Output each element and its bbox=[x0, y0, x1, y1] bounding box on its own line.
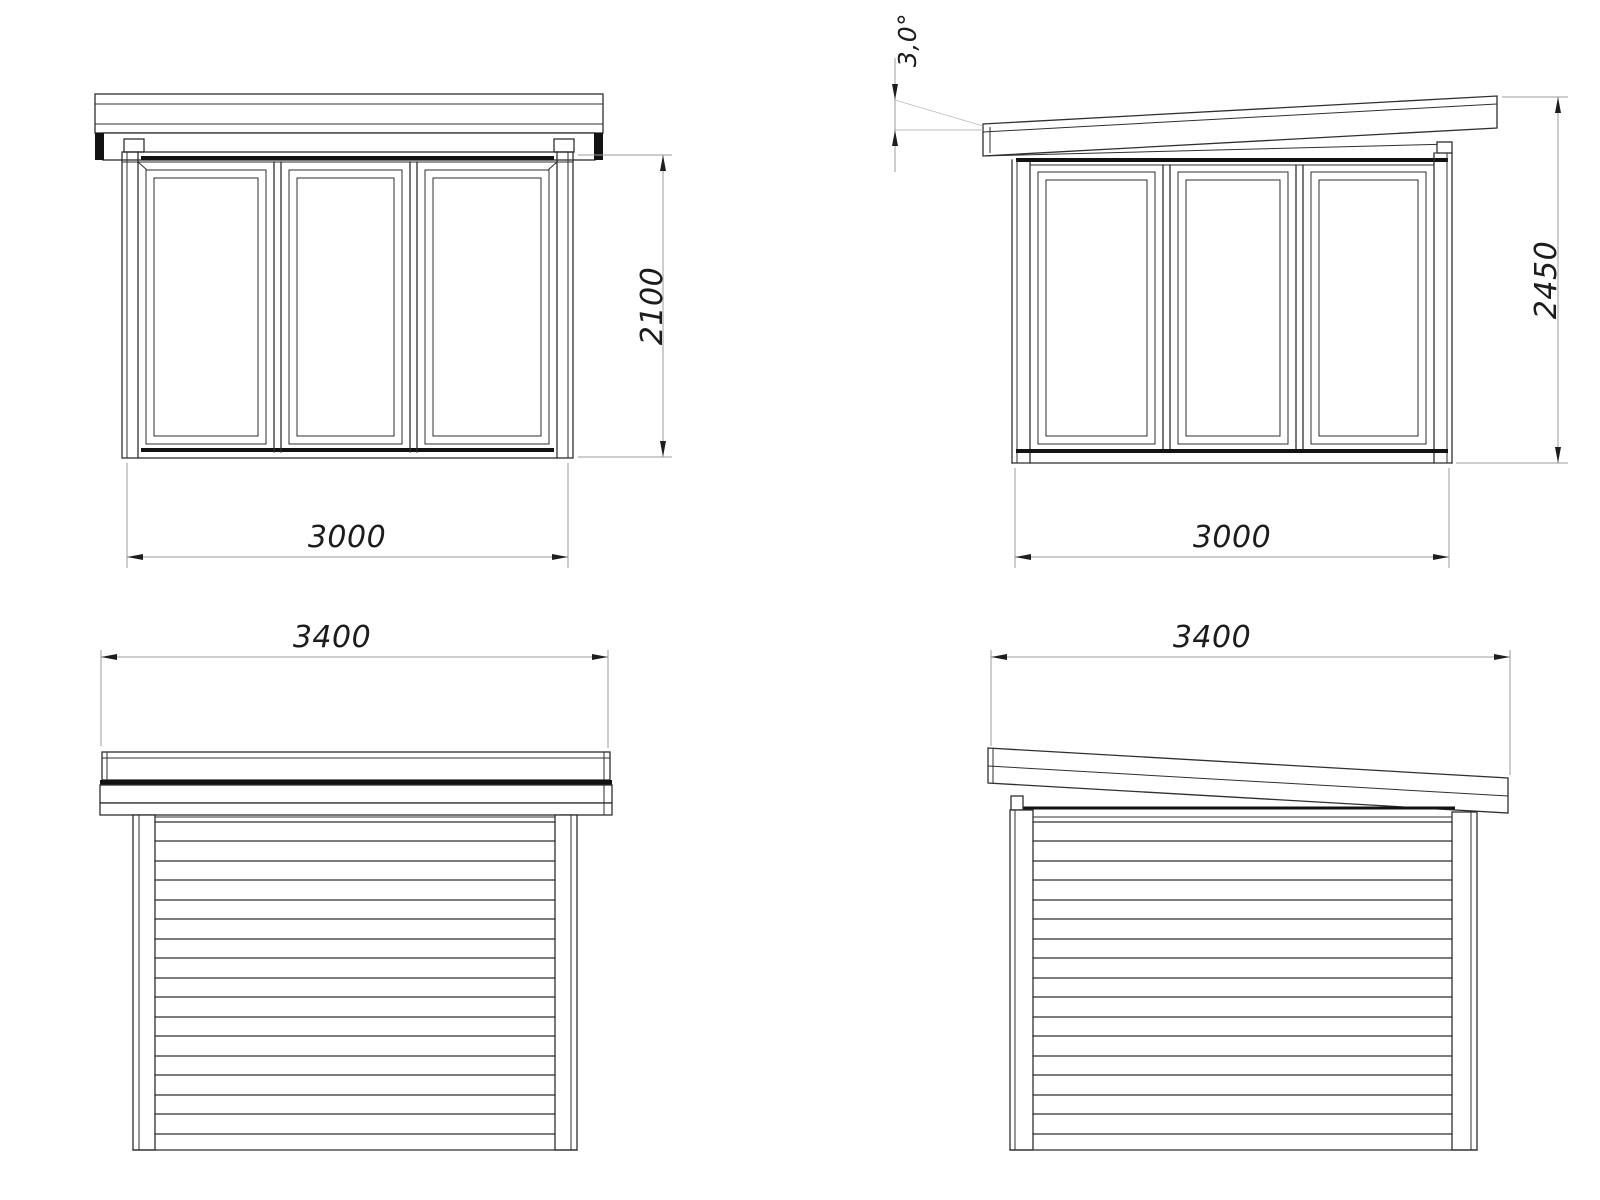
fascia-end-cap bbox=[95, 133, 104, 160]
roof-membrane-edge bbox=[100, 780, 612, 785]
view-front-elevation-flat: 2100 3000 bbox=[95, 94, 672, 568]
dimension-roof-angle: 3,0° bbox=[892, 13, 983, 172]
dimension-width: 3000 bbox=[1015, 468, 1449, 568]
roof-pent bbox=[988, 748, 1508, 813]
technical-drawing-page: 2100 3000 bbox=[0, 0, 1600, 1200]
log-wall bbox=[133, 815, 577, 1150]
dim-label-roof-length-side-right: 3400 bbox=[1173, 620, 1251, 655]
dimension-height: 2100 bbox=[578, 155, 672, 457]
roof-pent bbox=[983, 96, 1497, 156]
dim-label-height-front-right: 2450 bbox=[1529, 241, 1564, 319]
dim-label-width-front-left: 3000 bbox=[308, 520, 386, 555]
corner-post-right bbox=[1434, 153, 1452, 463]
view-side-elevation-pent: 3400 bbox=[988, 620, 1510, 1150]
corner-post-left bbox=[1010, 810, 1033, 1150]
corner-post-right bbox=[555, 815, 577, 1150]
post-top-notch bbox=[554, 139, 574, 152]
corner-post-right bbox=[1452, 812, 1477, 1150]
corner-post-left bbox=[127, 152, 147, 458]
corner-post-left bbox=[133, 815, 155, 1150]
dimension-roof-length: 3400 bbox=[991, 620, 1510, 775]
technical-drawing-canvas: 2100 3000 bbox=[0, 0, 1600, 1200]
glass-panel-2 bbox=[1178, 172, 1288, 444]
roof-flat bbox=[100, 752, 612, 815]
fascia-end-cap bbox=[594, 133, 603, 160]
log-wall bbox=[1010, 796, 1477, 1150]
dimension-roof-length: 3400 bbox=[101, 620, 608, 748]
glass-panel-3 bbox=[1311, 172, 1426, 444]
corner-post-right bbox=[548, 152, 568, 458]
glass-panel-3 bbox=[425, 170, 549, 444]
dim-label-roof-length-side-left: 3400 bbox=[293, 620, 371, 655]
roof-fascia bbox=[95, 94, 603, 160]
post-top-notch bbox=[1011, 796, 1023, 810]
view-side-elevation-flat: 3400 bbox=[100, 620, 612, 1150]
post-top-notch bbox=[124, 139, 144, 152]
mullions bbox=[274, 162, 417, 452]
dimension-height: 2450 bbox=[1456, 97, 1568, 463]
corner-post-left bbox=[1012, 160, 1030, 463]
dim-label-roof-angle: 3,0° bbox=[893, 13, 922, 67]
post-top-notch bbox=[1437, 142, 1452, 153]
glass-wall bbox=[1012, 153, 1452, 463]
dim-label-height-front-left: 2100 bbox=[635, 267, 670, 345]
glass-panel-1 bbox=[146, 170, 266, 444]
glass-panel-2 bbox=[289, 170, 402, 444]
mullions bbox=[1163, 165, 1303, 452]
dim-label-width-front-right: 3000 bbox=[1193, 520, 1271, 555]
glass-wall bbox=[122, 152, 573, 458]
dimension-width: 3000 bbox=[127, 463, 568, 568]
wall-cladding bbox=[155, 817, 555, 1134]
wall-cladding bbox=[1033, 817, 1452, 1134]
glass-panel-1 bbox=[1038, 172, 1155, 444]
view-front-elevation-pent: 3,0° 2450 3000 bbox=[892, 13, 1568, 568]
